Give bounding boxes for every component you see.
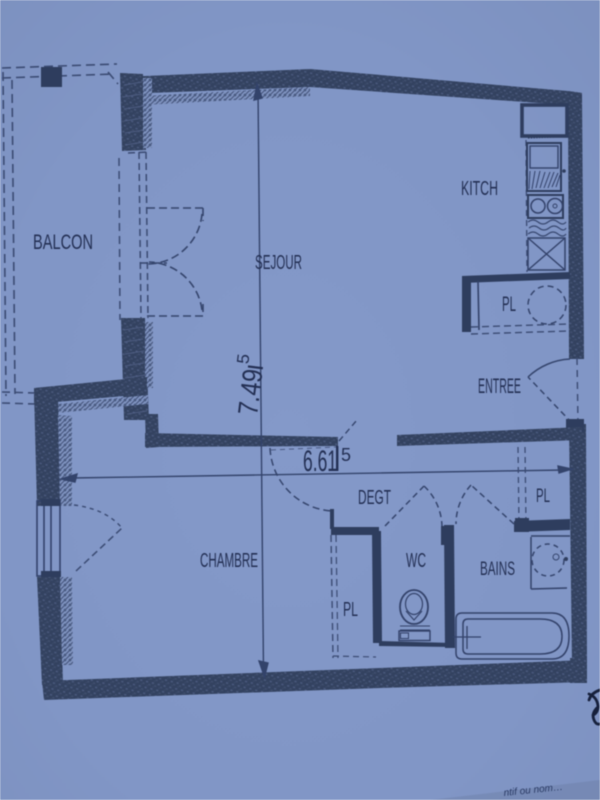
- svg-text:ENTREE: ENTREE: [478, 375, 521, 398]
- svg-text:PL: PL: [502, 293, 516, 316]
- svg-text:BAINS: BAINS: [480, 559, 515, 580]
- svg-text:DEGT: DEGT: [358, 487, 391, 509]
- svg-text:WC: WC: [406, 550, 426, 572]
- svg-text:PL: PL: [343, 599, 358, 621]
- svg-text:PL: PL: [536, 486, 550, 507]
- svg-text:5: 5: [341, 445, 351, 465]
- svg-text:SEJOUR: SEJOUR: [255, 252, 302, 274]
- svg-text:6.61: 6.61: [303, 445, 337, 478]
- svg-text:BALCON: BALCON: [33, 231, 93, 254]
- svg-text:7.49: 7.49: [232, 367, 268, 416]
- svg-text:KITCH: KITCH: [461, 178, 498, 200]
- svg-text:CHAMBRE: CHAMBRE: [200, 550, 258, 572]
